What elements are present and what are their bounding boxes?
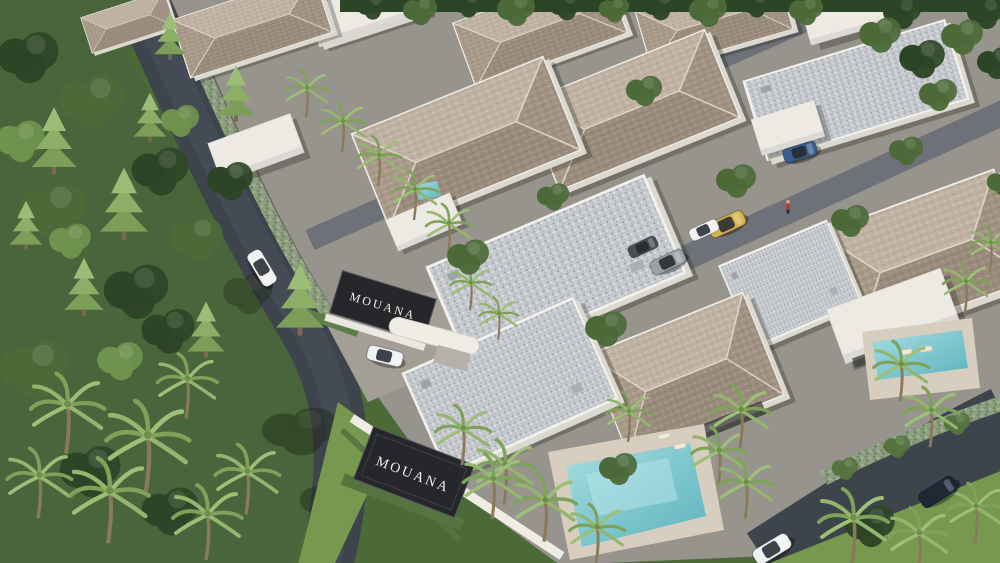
pedestrian bbox=[786, 200, 790, 214]
aerial-villa-render: MOUANA MOUANA bbox=[0, 0, 1000, 563]
render-canvas: MOUANA MOUANA bbox=[0, 0, 1000, 563]
